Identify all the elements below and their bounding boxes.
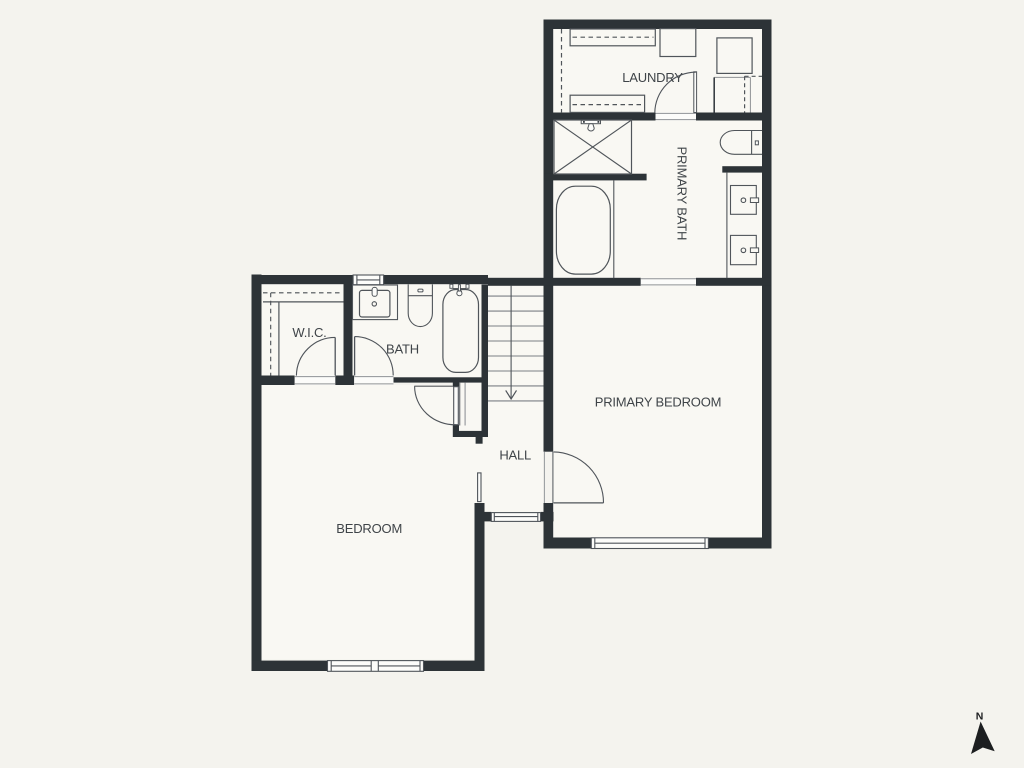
svg-text:HALL: HALL	[499, 448, 531, 463]
svg-text:PRIMARY BEDROOM: PRIMARY BEDROOM	[595, 394, 722, 409]
svg-text:BEDROOM: BEDROOM	[336, 521, 402, 536]
svg-text:LAUNDRY: LAUNDRY	[622, 70, 683, 85]
svg-text:BATH: BATH	[386, 342, 419, 357]
svg-text:W.I.C.: W.I.C.	[292, 325, 326, 340]
svg-text:N: N	[976, 711, 984, 723]
svg-text:PRIMARY BATH: PRIMARY BATH	[675, 147, 690, 241]
